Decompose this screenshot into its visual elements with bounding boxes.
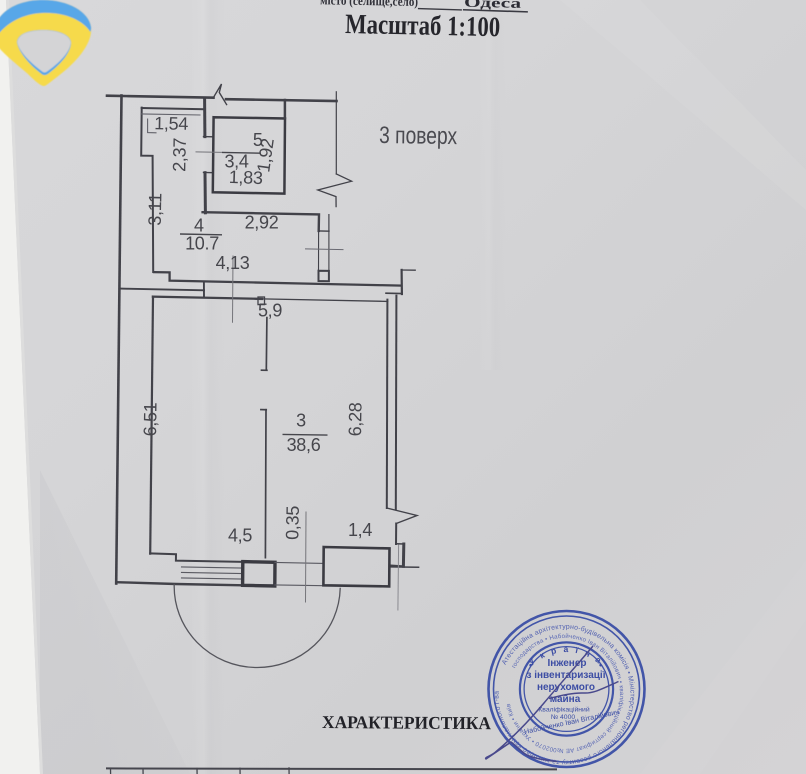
svg-text:4,13: 4,13 — [216, 253, 250, 273]
svg-text:3: 3 — [296, 410, 306, 430]
svg-text:2,92: 2,92 — [245, 212, 279, 232]
svg-text:•: • — [529, 660, 532, 670]
svg-text:6,51: 6,51 — [140, 402, 161, 436]
svg-text:1,4: 1,4 — [348, 520, 372, 540]
svg-text:2,37: 2,37 — [169, 138, 190, 172]
svg-text:10.7: 10.7 — [185, 234, 219, 254]
svg-text:3,11: 3,11 — [145, 193, 166, 226]
svg-text:4: 4 — [194, 216, 204, 236]
svg-text:5,9: 5,9 — [258, 301, 282, 321]
svg-text:Масштаб 1:100: Масштаб 1:100 — [345, 9, 501, 43]
svg-text:Кваліфікаційний: Кваліфікаційний — [538, 706, 590, 714]
svg-text:•: • — [599, 660, 602, 670]
svg-text:6,28: 6,28 — [345, 402, 366, 436]
svg-text:1,54: 1,54 — [154, 113, 188, 134]
svg-text:з інвентаризації: з інвентаризації — [526, 670, 605, 681]
svg-text:3 поверх: 3 поверх — [379, 122, 457, 150]
svg-text:4,5: 4,5 — [228, 525, 252, 545]
svg-text:ХАРАКТЕРИСТИКА: ХАРАКТЕРИСТИКА — [322, 712, 491, 733]
svg-text:0,35: 0,35 — [282, 506, 303, 540]
svg-text:нерухомого: нерухомого — [537, 682, 595, 693]
svg-text:38,6: 38,6 — [287, 435, 321, 455]
